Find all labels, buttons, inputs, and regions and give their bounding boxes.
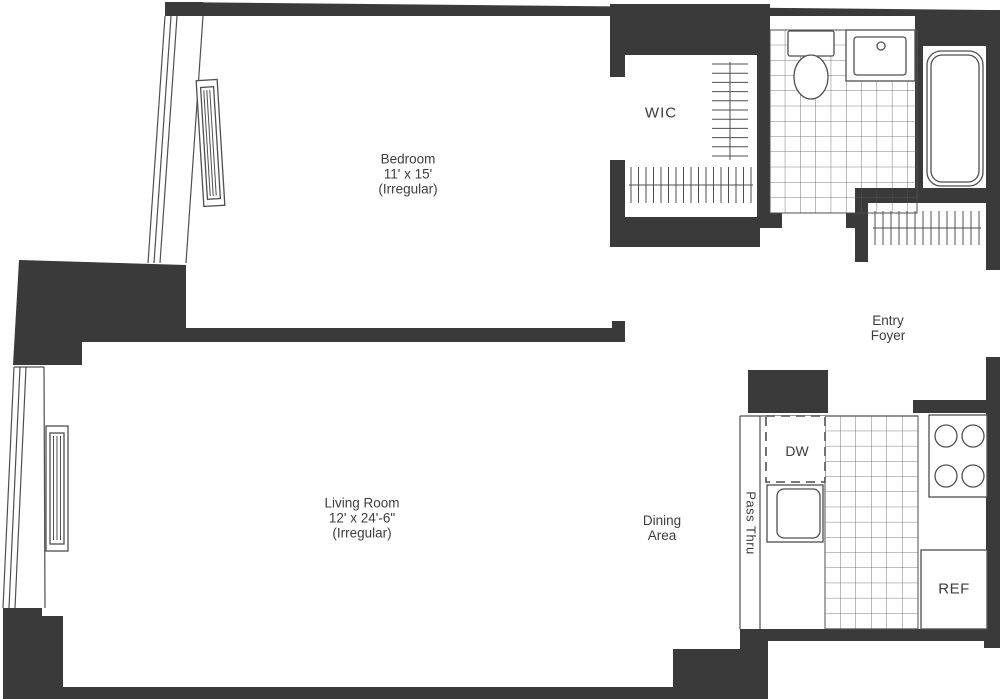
kitchen-tile-floor (825, 416, 918, 629)
floor-plan: Bedroom 11' x 15' (Irregular) WIC Living… (0, 0, 1000, 699)
living-room-dims: 12' x 24'-6" (324, 511, 399, 526)
living-room-note: (Irregular) (324, 526, 399, 541)
pass-thru-label: Pass Thru (744, 491, 759, 555)
living-room-label: Living Room 12' x 24'-6" (Irregular) (324, 496, 399, 541)
bedroom-label: Bedroom 11' x 15' (Irregular) (378, 152, 437, 197)
wic-closet-rod-icon (629, 167, 753, 203)
bathroom-sink-icon (846, 30, 915, 81)
floor-plan-svg (0, 0, 1000, 699)
living-room-name: Living Room (324, 496, 399, 511)
entry-closet-rod-icon (873, 211, 981, 245)
wic-label: WIC (645, 106, 677, 121)
kitchen-sink-icon (767, 485, 823, 542)
dining-area-label: Dining Area (643, 513, 681, 543)
dw-label: DW (785, 443, 808, 459)
bedroom-radiator-icon (196, 79, 225, 206)
bedroom-note: (Irregular) (378, 182, 437, 197)
wic-shelf-icon (712, 62, 748, 160)
bathtub-icon (927, 51, 983, 186)
living-room-radiator-icon (46, 426, 68, 551)
stove-burners-icon (929, 415, 987, 497)
ref-label: REF (938, 581, 970, 598)
entry-foyer-label: Entry Foyer (871, 313, 906, 343)
bedroom-window (148, 16, 203, 263)
living-room-window (3, 367, 45, 608)
bedroom-name: Bedroom (378, 152, 437, 167)
bedroom-dims: 11' x 15' (378, 167, 437, 182)
